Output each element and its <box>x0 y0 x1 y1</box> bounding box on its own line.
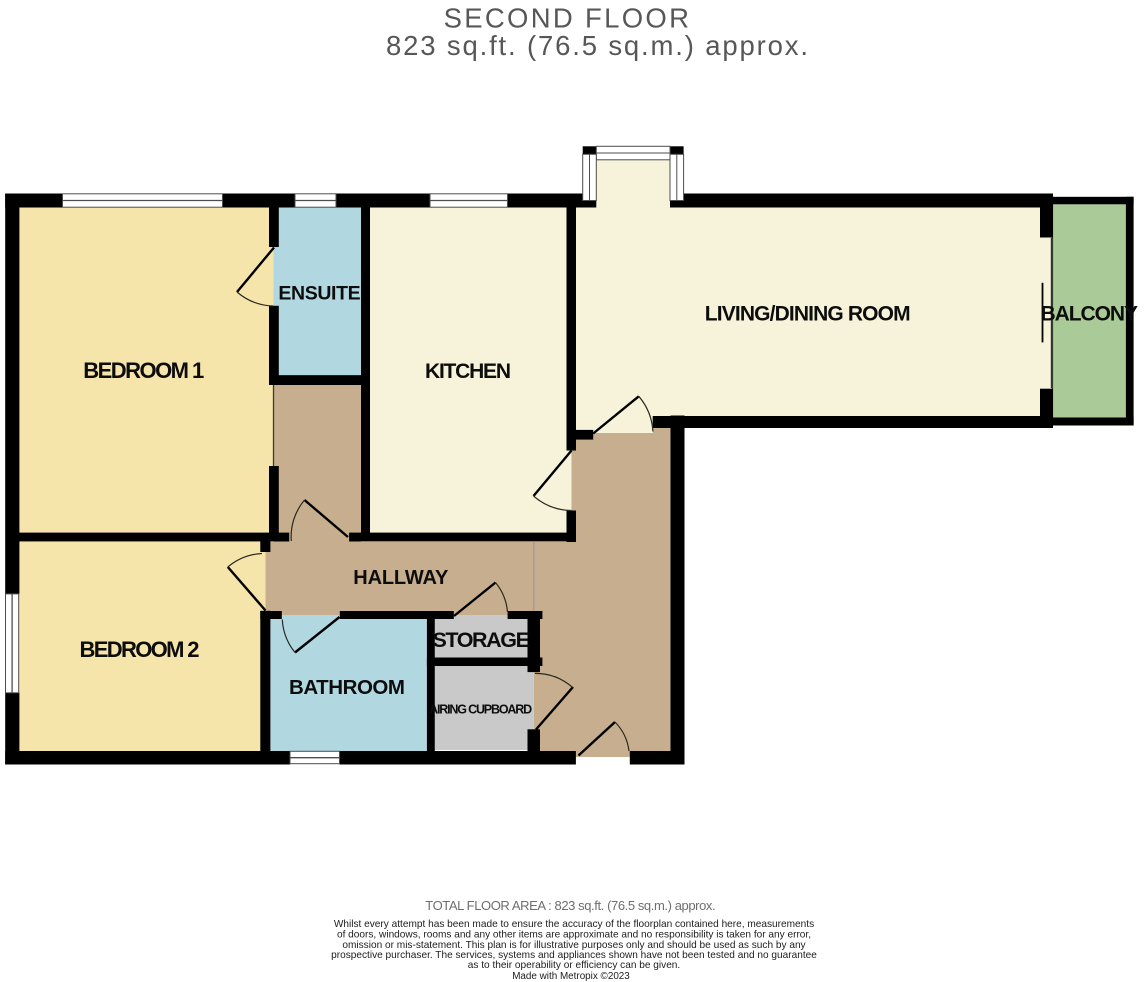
svg-text:HALLWAY: HALLWAY <box>353 567 449 589</box>
svg-text:STORAGE: STORAGE <box>432 628 530 652</box>
svg-text:Made with Metropix ©2023: Made with Metropix ©2023 <box>512 971 630 982</box>
svg-text:SECOND FLOOR: SECOND FLOOR <box>444 3 689 34</box>
svg-text:BATHROOM: BATHROOM <box>289 676 405 699</box>
svg-text:AIRING CUPBOARD: AIRING CUPBOARD <box>429 703 532 717</box>
svg-text:BALCONY: BALCONY <box>1041 303 1139 326</box>
svg-text:of doors, windows, rooms and a: of doors, windows, rooms and any other i… <box>337 930 811 941</box>
svg-text:KITCHEN: KITCHEN <box>425 360 511 383</box>
svg-text:ENSUITE: ENSUITE <box>278 283 360 305</box>
svg-text:LIVING/DINING ROOM: LIVING/DINING ROOM <box>705 302 911 325</box>
svg-text:Whilst every attempt has been: Whilst every attempt has been made to en… <box>334 919 814 930</box>
svg-text:BEDROOM 2: BEDROOM 2 <box>80 637 200 662</box>
svg-text:823 sq.ft. (76.5 sq.m.) approx: 823 sq.ft. (76.5 sq.m.) approx. <box>386 30 808 61</box>
svg-text:as to their operability or eff: as to their operability or efficiency ca… <box>468 960 680 971</box>
svg-text:TOTAL FLOOR AREA : 823 sq.ft.: TOTAL FLOOR AREA : 823 sq.ft. (76.5 sq.m… <box>425 898 715 913</box>
svg-text:BEDROOM 1: BEDROOM 1 <box>83 358 204 383</box>
